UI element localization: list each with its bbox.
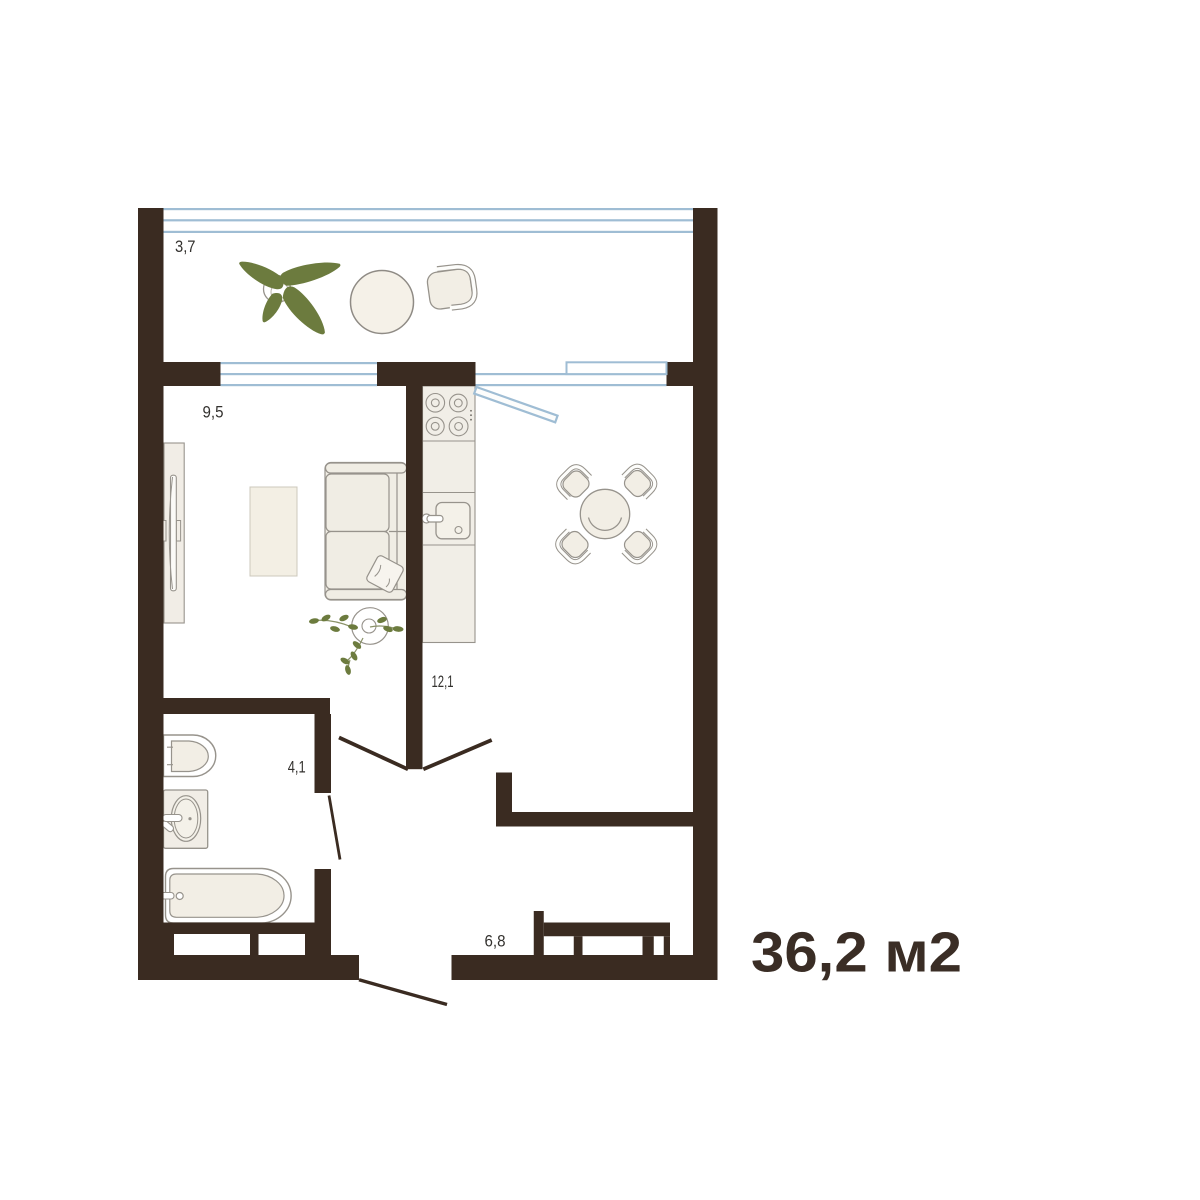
svg-text:6,8: 6,8 [485, 933, 506, 951]
svg-text:4,1: 4,1 [288, 759, 306, 777]
svg-text:3,7: 3,7 [175, 238, 196, 256]
svg-text:12,1: 12,1 [432, 673, 454, 691]
svg-text:9,5: 9,5 [203, 404, 224, 422]
svg-text:36,2 м2: 36,2 м2 [751, 921, 962, 984]
